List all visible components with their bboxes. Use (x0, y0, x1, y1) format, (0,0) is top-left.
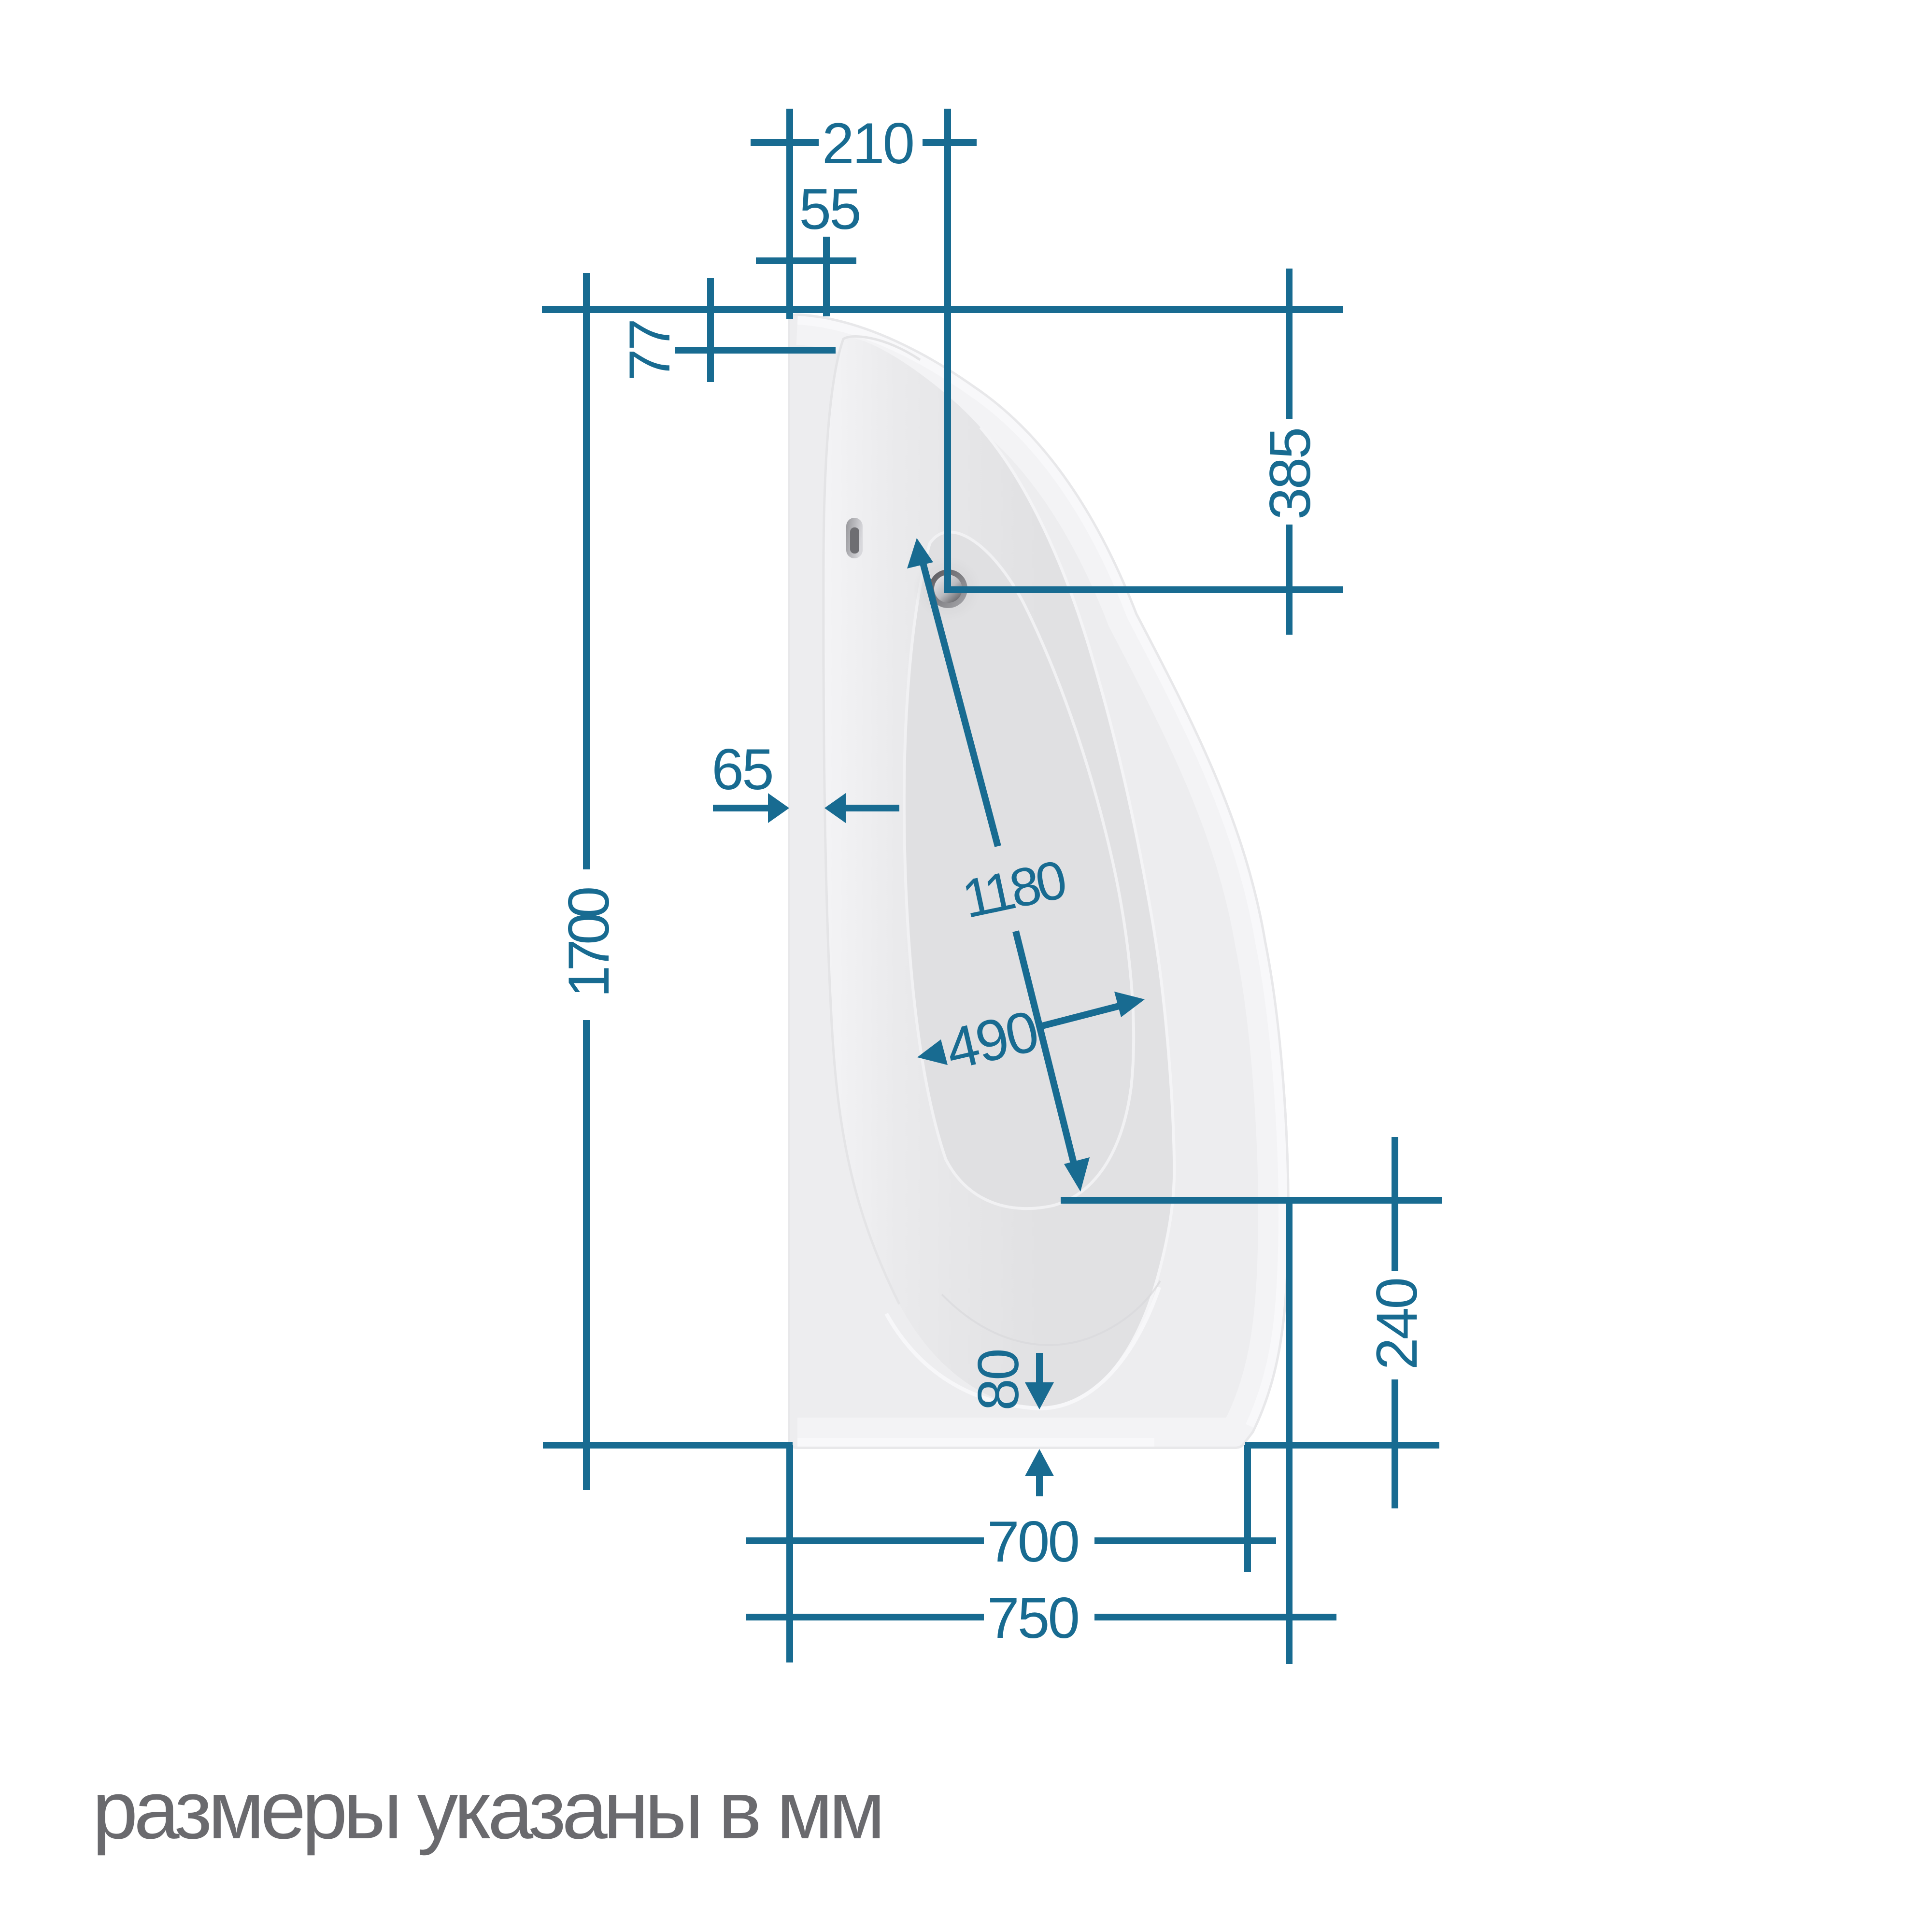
svg-text:80: 80 (966, 1350, 1031, 1411)
svg-text:750: 750 (987, 1586, 1078, 1650)
svg-text:385: 385 (1258, 429, 1322, 520)
svg-text:240: 240 (1364, 1279, 1429, 1370)
svg-text:700: 700 (987, 1509, 1078, 1574)
svg-text:210: 210 (822, 111, 913, 176)
svg-text:размеры указаны в мм: размеры указаны в мм (92, 1764, 881, 1856)
svg-text:77: 77 (617, 320, 682, 381)
svg-text:1700: 1700 (556, 888, 621, 997)
svg-text:65: 65 (711, 737, 772, 802)
svg-text:55: 55 (799, 177, 859, 241)
